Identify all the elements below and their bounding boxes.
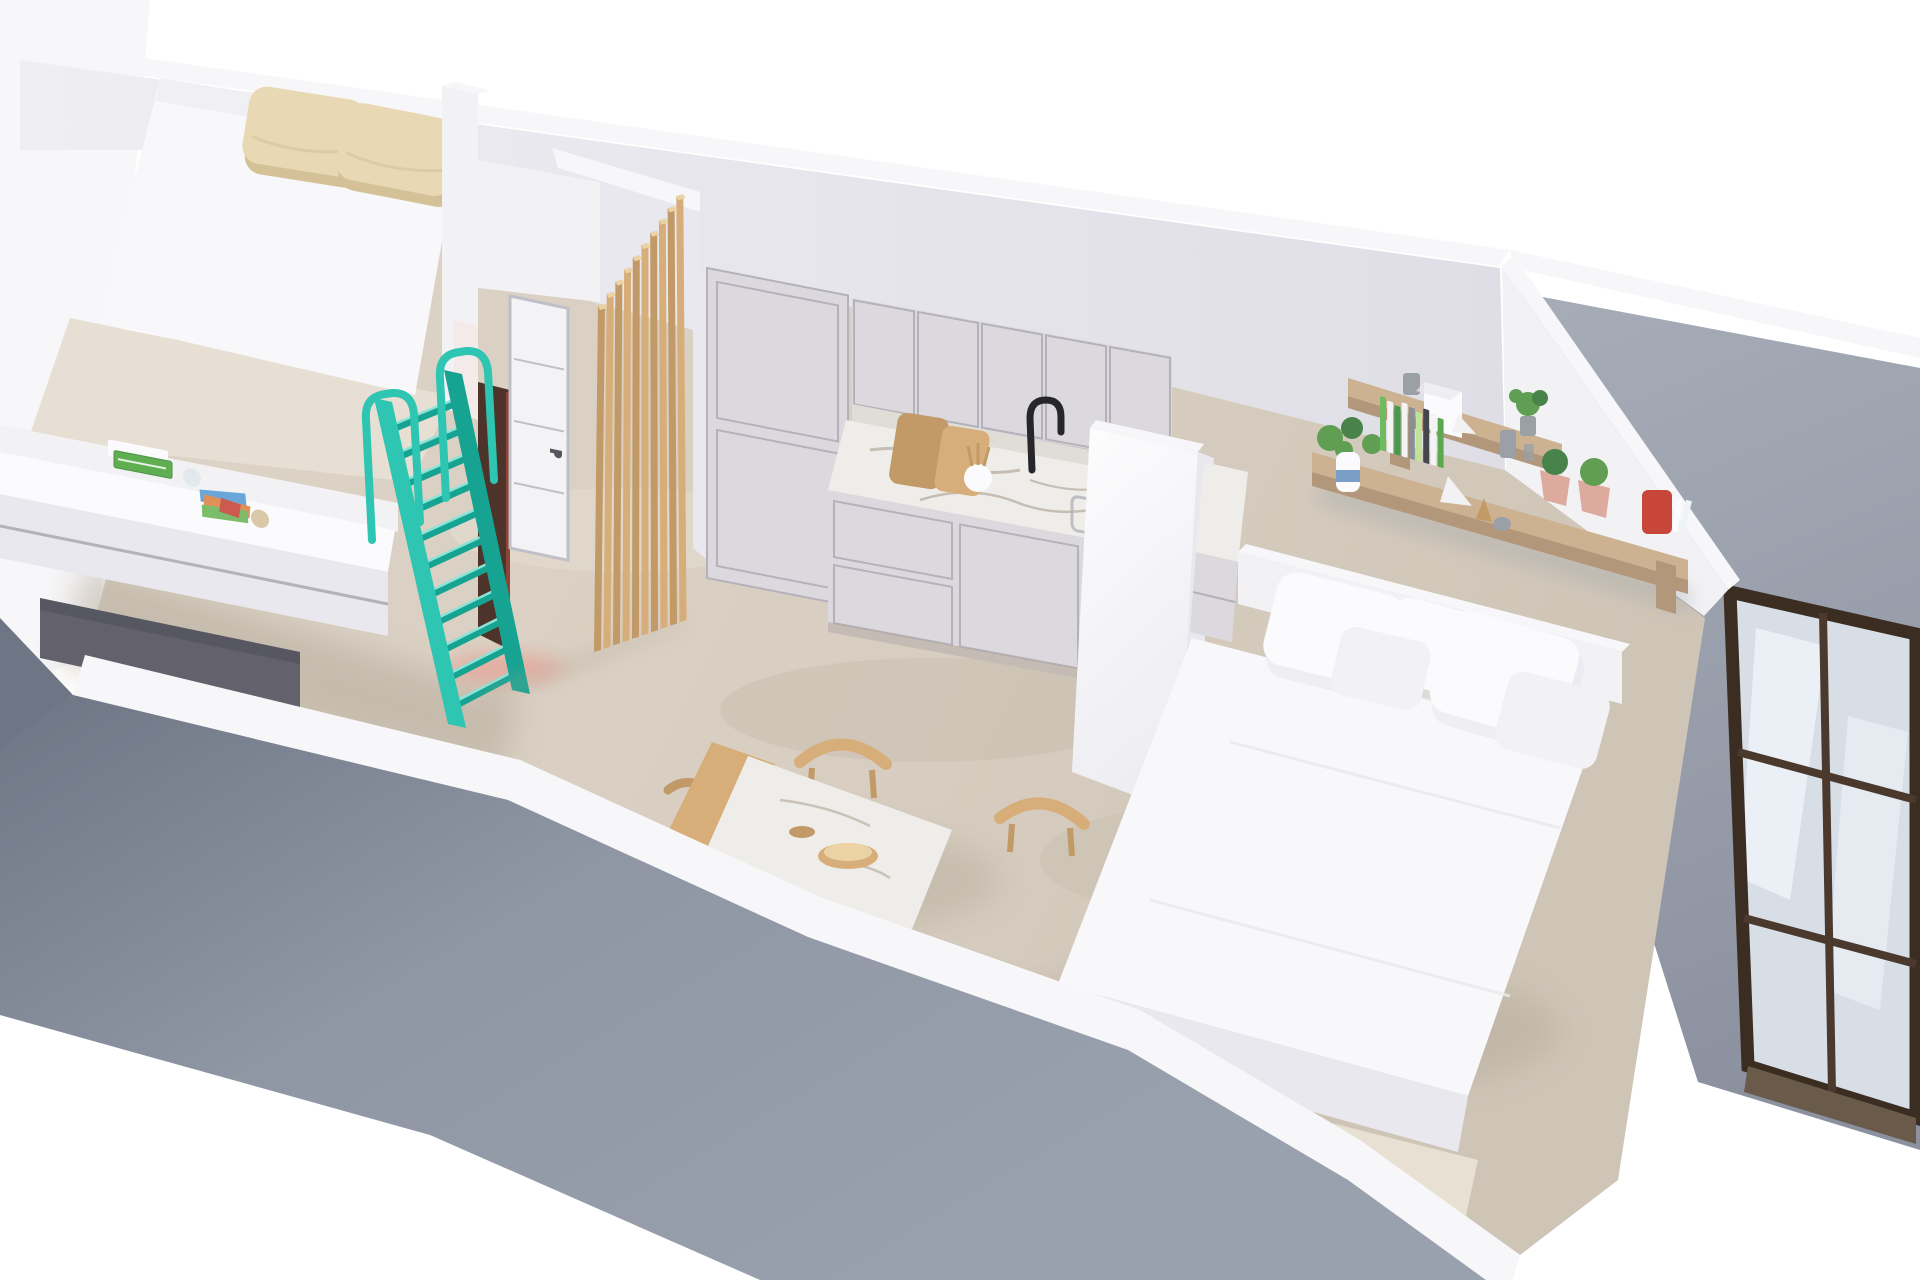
utensil-cup: [964, 464, 992, 492]
wood-slat: [632, 255, 640, 639]
white-door: [510, 296, 568, 560]
gray-vase: [1500, 430, 1516, 458]
book-spine: [1380, 396, 1386, 452]
glass-entry-door: [1730, 592, 1916, 1144]
foliage: [1362, 434, 1382, 454]
succulent: [1542, 449, 1568, 475]
tall-cabinet-side: [693, 268, 707, 560]
book-spine: [1423, 408, 1429, 464]
plant-leaves: [1509, 389, 1523, 403]
book-spine: [1387, 401, 1393, 454]
book-spine: [1438, 418, 1444, 469]
door-header: [478, 160, 600, 302]
plant-pot: [1520, 416, 1536, 436]
vase-band: [1336, 470, 1360, 482]
tall-cabinet: [707, 268, 848, 605]
book-spine: [1394, 405, 1400, 456]
gray-vase-small: [1524, 444, 1534, 461]
salad-bowl-inner: [824, 843, 872, 861]
foliage: [1341, 417, 1363, 439]
floorplan-render: [0, 0, 1920, 1280]
stone-pebble: [1493, 517, 1511, 531]
floorplan-svg: [0, 0, 1920, 1280]
succulent: [1580, 458, 1608, 486]
red-speaker: [1642, 490, 1672, 534]
book-spine: [1430, 413, 1436, 466]
plant-leaves: [1532, 390, 1548, 406]
tall-cabinet-front: [707, 268, 848, 605]
shelf-bracket: [1656, 560, 1676, 614]
candle-jar: [1403, 373, 1420, 395]
book-spine: [1402, 402, 1408, 458]
book-spine: [1409, 407, 1415, 460]
door-panel: [510, 296, 568, 560]
wood-slat: [642, 243, 649, 636]
small-bowl: [789, 826, 815, 838]
wood-slat: [650, 231, 658, 632]
book-spine: [1416, 411, 1422, 462]
